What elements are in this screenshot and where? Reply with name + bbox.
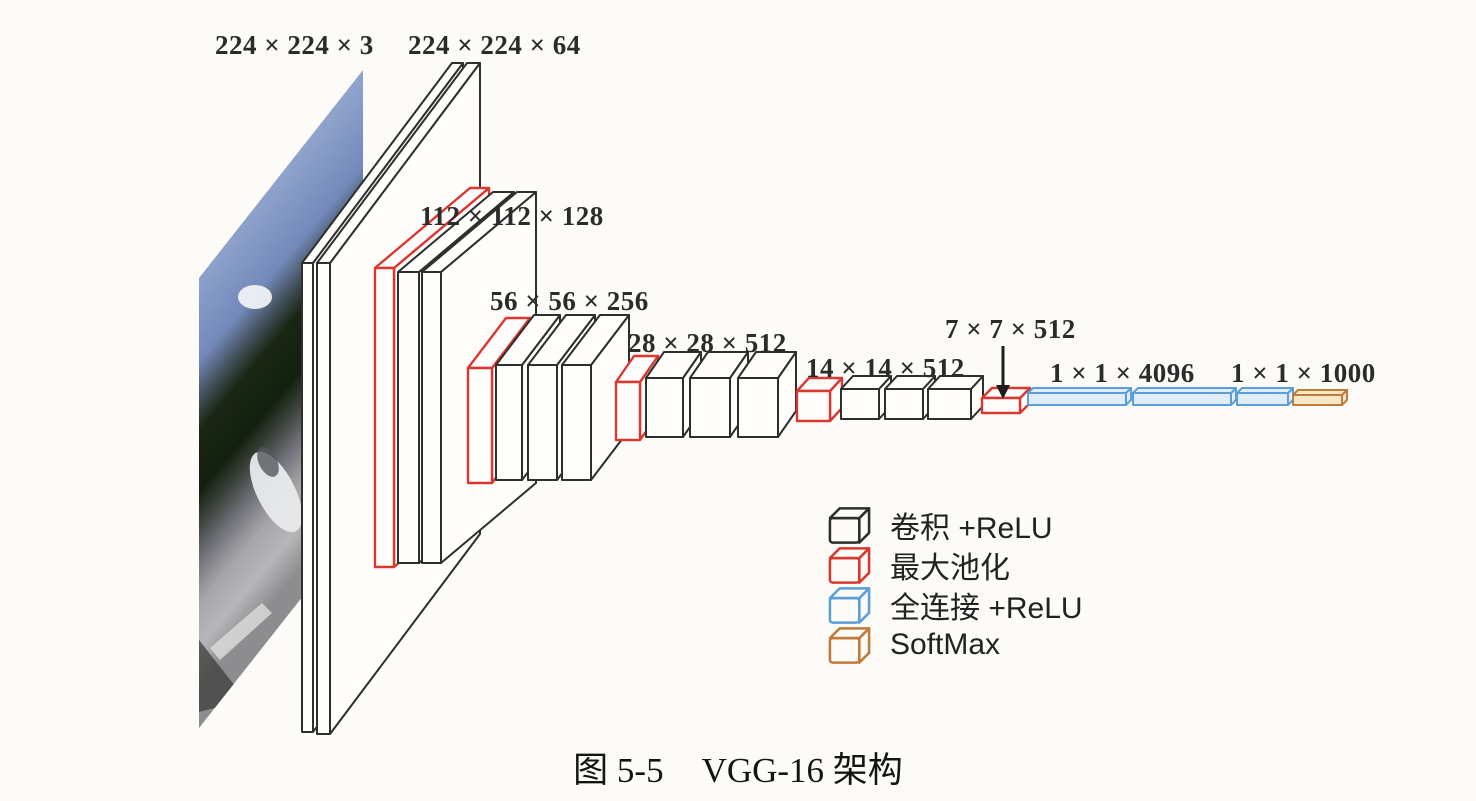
dim-label-output: 1 × 1 × 1000	[1231, 358, 1376, 389]
legend-label-softmax: SoftMax	[890, 628, 1000, 662]
legend-item-fc: 全连接 +ReLU	[826, 588, 1083, 622]
dim-label-stage5: 14 × 14 × 512	[806, 353, 965, 384]
conv-layer-slab	[738, 352, 796, 437]
dim-label-fc: 1 × 1 × 4096	[1050, 358, 1195, 389]
caption-title: VGG-16 架构	[702, 751, 903, 790]
dim-label-input: 224 × 224 × 3	[215, 30, 374, 61]
figure-page: 224 × 224 × 3 224 × 224 × 64 112 × 112 ×…	[0, 0, 1476, 801]
dim-label-stage3: 56 × 56 × 256	[490, 286, 649, 317]
caption-number: 图 5-5	[573, 751, 663, 790]
legend-label-fc: 全连接 +ReLU	[890, 583, 1083, 627]
softmax-cube-icon	[826, 625, 873, 665]
pool-cube-icon	[826, 545, 873, 585]
maxpool-layer-slab	[797, 378, 842, 421]
dim-label-pool5: 7 × 7 × 512	[945, 314, 1076, 345]
fc-layer-slab	[1237, 388, 1293, 405]
legend: 卷积 +ReLU 最大池化 全连接 +ReLU SoftM	[826, 508, 1083, 662]
cloud-highlight	[238, 285, 272, 309]
dim-label-stage2: 112 × 112 × 128	[420, 201, 604, 232]
figure-caption: 图 5-5VGG-16 架构	[0, 742, 1476, 793]
softmax-layer-slab	[1293, 390, 1347, 405]
dim-label-stage4: 28 × 28 × 512	[628, 328, 787, 359]
fc-layer-slab	[1028, 388, 1131, 405]
fc-cube-icon	[826, 585, 873, 625]
fc-layer-slab	[1133, 388, 1236, 405]
conv-cube-icon	[826, 505, 873, 545]
legend-label-pool: 最大池化	[890, 543, 1010, 587]
vgg16-architecture-diagram	[0, 0, 1476, 801]
dim-label-stage1: 224 × 224 × 64	[408, 30, 581, 61]
legend-item-pool: 最大池化	[826, 548, 1083, 582]
legend-label-conv: 卷积 +ReLU	[890, 503, 1053, 547]
legend-item-softmax: SoftMax	[826, 628, 1083, 662]
legend-item-conv: 卷积 +ReLU	[826, 508, 1083, 542]
